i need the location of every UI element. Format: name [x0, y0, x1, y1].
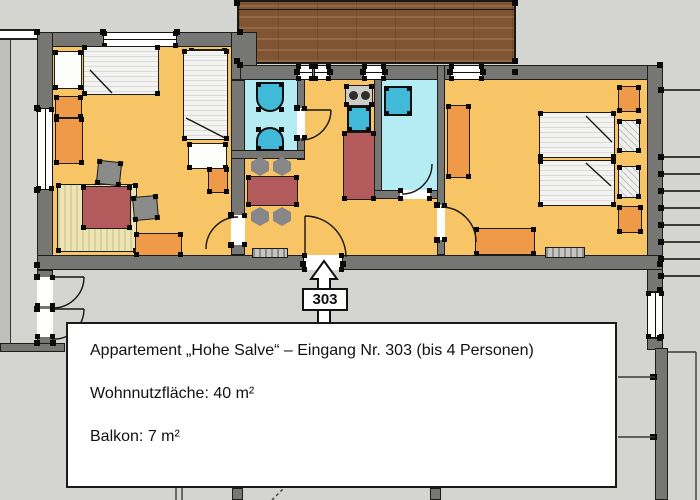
wall-junction-handle [657, 62, 663, 68]
wall-junction-handle [512, 0, 518, 6]
corner-handle [49, 186, 54, 191]
wall-junction-handle [50, 340, 56, 346]
corner-handle [54, 95, 59, 100]
sofa [135, 233, 182, 256]
shower-tray [384, 86, 412, 116]
corridor-door-opening-2 [37, 309, 53, 337]
corner-handle [134, 252, 139, 257]
corner-handle [53, 85, 58, 90]
corner-handle [636, 148, 641, 153]
wall-junction-handle [382, 69, 388, 75]
corner-handle [279, 146, 284, 151]
corner-handle [178, 252, 183, 257]
wall-junction-handle [480, 69, 486, 75]
corner-handle [466, 104, 471, 109]
wardrobe-upper [55, 96, 82, 118]
wall-junction-handle [34, 274, 40, 280]
corner-handle [223, 142, 228, 147]
corner-handle [371, 196, 376, 201]
nightstand [54, 51, 82, 89]
bottom-stub-2 [430, 488, 441, 500]
corner-handle [466, 174, 471, 179]
stairs [663, 90, 700, 276]
corner-handle [127, 185, 132, 190]
corner-handle [50, 334, 55, 339]
corner-handle [224, 189, 229, 194]
bedroom-nightstand-1 [618, 120, 640, 152]
right-stair-wall [655, 348, 668, 500]
wall-junction-handle [434, 202, 440, 208]
corner-handle [474, 227, 479, 232]
kitchen-counter [343, 132, 375, 200]
corner-handle [339, 253, 344, 258]
wall-junction-handle [34, 29, 40, 35]
corner-handle [81, 225, 86, 230]
toilet [256, 127, 284, 151]
corner-handle [97, 159, 102, 164]
caption-box: Appartement „Hohe Salve“ – Eingang Nr. 3… [66, 322, 617, 488]
partition-kitchen-shower [374, 78, 382, 198]
floor-plan: 303 Appartement „Hohe Salve“ – Eingang N… [0, 0, 700, 500]
corner-handle [446, 104, 451, 109]
corner-handle [371, 131, 376, 136]
corner-handle [646, 334, 651, 339]
corner-handle [611, 159, 616, 164]
door-opening-shower [400, 190, 430, 199]
corner-handle [617, 205, 622, 210]
corner-handle [224, 136, 229, 141]
bedroom-wardrobe [447, 105, 470, 178]
corner-handle [636, 85, 641, 90]
corner-handle [369, 84, 374, 89]
corner-handle [617, 108, 622, 113]
corner-handle [81, 185, 86, 190]
corner-handle [279, 82, 284, 87]
corner-handle [118, 161, 123, 166]
dining-table [247, 176, 298, 206]
corner-handle [182, 49, 187, 54]
window-bedroom-top [450, 65, 483, 80]
corner-handle [133, 217, 138, 222]
bedroom-nightstand-2 [618, 166, 640, 198]
corner-handle [256, 107, 261, 112]
wardrobe-lower [55, 118, 83, 164]
bedroom-bench [475, 228, 535, 255]
corner-handle [153, 194, 158, 199]
corner-handle [381, 76, 386, 81]
corner-handle [207, 189, 212, 194]
door-opening-living [231, 215, 245, 245]
corner-handle [342, 196, 347, 201]
corner-handle [646, 291, 651, 296]
corner-handle [155, 91, 160, 96]
corner-handle [173, 43, 178, 48]
stove-burner-2 [361, 91, 370, 100]
corner-handle [617, 119, 622, 124]
corner-handle [116, 182, 121, 187]
stove [345, 85, 373, 106]
wall-junction-handle [512, 58, 518, 64]
partition-bath-bottom [231, 150, 305, 159]
coffee-table [82, 186, 131, 229]
corner-handle [366, 106, 371, 111]
corner-handle [187, 142, 192, 147]
bedroom-dresser-2 [618, 206, 642, 233]
corner-handle [79, 117, 84, 122]
corner-handle [407, 86, 412, 91]
corner-handle [155, 215, 160, 220]
wall-junction-handle [228, 242, 234, 248]
corner-handle [242, 213, 247, 218]
corner-handle [474, 251, 479, 256]
corner-handle [296, 76, 301, 81]
wall-junction-handle [34, 340, 40, 346]
corner-handle [256, 82, 261, 87]
wall-junction-handle [237, 29, 243, 35]
nightstand-2 [188, 143, 227, 169]
corner-handle [187, 165, 192, 170]
corner-handle [155, 45, 160, 50]
corner-handle [636, 108, 641, 113]
corner-handle [127, 225, 132, 230]
corner-handle [531, 251, 536, 256]
single-bed-2 [183, 50, 228, 140]
wall-junction-handle [657, 287, 663, 293]
corridor-door-opening-1 [37, 277, 53, 306]
corner-handle [442, 203, 447, 208]
corner-handle [279, 107, 284, 112]
single-bed-1 [83, 46, 159, 95]
corner-handle [49, 107, 54, 112]
corner-handle [294, 202, 299, 207]
corner-handle [344, 84, 349, 89]
corner-handle [54, 160, 59, 165]
wall-junction-handle [34, 187, 40, 193]
corner-handle [53, 50, 58, 55]
corner-handle [427, 196, 432, 201]
corner-handle [617, 229, 622, 234]
entrance-number-plate: 303 [302, 288, 348, 311]
wall-junction-handle [237, 62, 243, 68]
door-opening-bedroom [437, 205, 445, 240]
corner-handle [56, 248, 61, 253]
door-arc-corridor-1 [53, 277, 84, 308]
corner-handle [313, 76, 318, 81]
corner-handle [246, 175, 251, 180]
corner-handle [636, 119, 641, 124]
corner-handle [449, 76, 454, 81]
radiator-bedroom [545, 247, 585, 258]
corner-handle [79, 160, 84, 165]
wall-junction-handle [34, 262, 40, 268]
corner-handle [617, 165, 622, 170]
caption-title: Appartement „Hohe Salve“ – Eingang Nr. 3… [90, 340, 615, 361]
corner-handle [182, 136, 187, 141]
corner-handle [302, 253, 307, 258]
corner-handle [611, 111, 616, 116]
corner-handle [178, 232, 183, 237]
armchair-1 [96, 160, 122, 186]
corner-handle [78, 95, 83, 100]
corner-handle [35, 334, 40, 339]
entrance-door-opening [303, 255, 343, 270]
corner-handle [242, 242, 247, 247]
wall-junction-handle [360, 69, 366, 75]
corner-handle [531, 227, 536, 232]
wall-junction-handle [657, 335, 663, 341]
corner-handle [427, 188, 432, 193]
window-living-left [37, 108, 53, 190]
corner-handle [538, 159, 543, 164]
corner-handle [538, 111, 543, 116]
wall-junction-handle [447, 69, 453, 75]
corner-handle [256, 127, 261, 132]
caption-balcony-area: Balkon: 7 m² [90, 426, 615, 447]
window-stairwell [647, 292, 663, 338]
window-living-top [103, 32, 177, 47]
corner-handle [347, 106, 352, 111]
bedroom-dresser-1 [618, 86, 640, 112]
balcony-deck [237, 0, 516, 64]
corner-handle [398, 188, 403, 193]
corner-handle [302, 267, 307, 272]
corner-handle [617, 194, 622, 199]
corner-handle [617, 148, 622, 153]
corner-handle [362, 76, 367, 81]
wall-junction-handle [228, 212, 234, 218]
corner-handle [82, 45, 87, 50]
corner-handle [54, 117, 59, 122]
corner-handle [538, 202, 543, 207]
double-bed-mattress-1 [539, 112, 615, 158]
corner-handle [342, 131, 347, 136]
caption-living-area: Wohnnutzfläche: 40 m² [90, 383, 615, 404]
corner-handle [207, 167, 212, 172]
corner-handle [617, 85, 622, 90]
corner-handle [134, 232, 139, 237]
corner-handle [50, 275, 55, 280]
wall-junction-handle [300, 261, 306, 267]
kitchen-sink [347, 106, 371, 132]
corner-handle [224, 167, 229, 172]
wall-junction-handle [327, 69, 333, 75]
wall-junction-handle [100, 29, 106, 35]
wall-junction-handle [294, 135, 300, 141]
radiator-hall [252, 248, 288, 258]
corner-handle [479, 76, 484, 81]
corner-handle [398, 196, 403, 201]
wall-junction-handle [234, 0, 240, 6]
corner-handle [638, 205, 643, 210]
corner-handle [636, 165, 641, 170]
corner-handle [326, 76, 331, 81]
corner-handle [636, 194, 641, 199]
balcony-railing-line [239, 9, 514, 10]
bathroom-sink [256, 82, 284, 112]
corner-handle [224, 49, 229, 54]
corner-handle [279, 127, 284, 132]
armchair-2 [132, 195, 159, 221]
wall-junction-handle [434, 237, 440, 243]
wall-junction-handle [657, 261, 663, 267]
corner-handle [56, 183, 61, 188]
corner-handle [638, 229, 643, 234]
wall-junction-handle [294, 69, 300, 75]
corner-handle [246, 202, 251, 207]
wall-junction-handle [34, 105, 40, 111]
wall-junction-handle [294, 105, 300, 111]
wall-junction-handle [34, 306, 40, 312]
small-cabinet [208, 168, 228, 193]
corner-handle [294, 175, 299, 180]
corner-handle [611, 202, 616, 207]
corner-handle [50, 307, 55, 312]
corner-handle [339, 267, 344, 272]
neighbor-wall-strip [0, 29, 37, 40]
corner-handle [256, 146, 261, 151]
corner-handle [302, 106, 307, 111]
wall-junction-handle [174, 29, 180, 35]
wall-junction-handle [512, 69, 518, 75]
corner-handle [407, 111, 412, 116]
corner-handle [384, 86, 389, 91]
corner-handle [133, 183, 138, 188]
corner-handle [384, 111, 389, 116]
door-opening-bathroom [297, 108, 305, 138]
corner-handle [131, 196, 136, 201]
corner-handle [302, 135, 307, 140]
corner-handle [442, 237, 447, 242]
wall-junction-handle [340, 261, 346, 267]
bottom-stub-1 [232, 488, 243, 500]
corner-handle [95, 180, 100, 185]
double-bed-mattress-2 [539, 160, 615, 206]
corner-handle [313, 64, 318, 69]
stove-burner-1 [349, 91, 358, 100]
corner-handle [446, 174, 451, 179]
left-exterior-wall-band [0, 40, 11, 343]
